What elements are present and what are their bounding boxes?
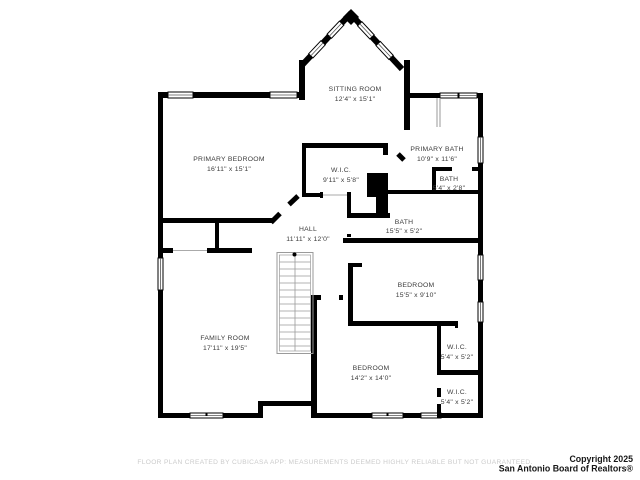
window: [270, 92, 297, 98]
room-dims-wic-lower: 5'4" x 5'2": [441, 399, 474, 406]
window: [376, 41, 393, 59]
room-labels: SITTING ROOM 12'4" x 15'1" PRIMARY BEDRO…: [193, 86, 473, 406]
shower-glass-partition: [437, 98, 440, 127]
bay-wall-right: [347, 10, 405, 71]
window: [478, 137, 483, 163]
copyright-line1: Copyright 2025: [569, 454, 633, 464]
room-dims-primary-bedroom: 16'11" x 15'1": [207, 166, 251, 173]
window: [358, 22, 375, 39]
room-dims-primary-bath: 10'9" x 11'6": [417, 156, 457, 163]
room-label-sitting-room: SITTING ROOM: [329, 86, 382, 93]
footer: FLOOR PLAN CREATED BY CUBICASA APP: MEAS…: [137, 454, 633, 474]
stair-start-marker: [293, 253, 297, 257]
room-dims-wic-upper: 5'4" x 5'2": [441, 354, 474, 361]
room-dims-bedroom-east: 15'5" x 9'10": [396, 292, 437, 299]
room-label-wic-lower: W.I.C.: [447, 389, 467, 396]
room-label-wic-upper: W.I.C.: [447, 344, 467, 351]
exterior-walls: [158, 9, 483, 418]
copyright-line2: San Antonio Board of Realtors®: [499, 464, 634, 474]
chimney-block: [367, 173, 388, 217]
bay-wall-left: [299, 11, 353, 68]
room-label-bath: BATH: [395, 219, 414, 226]
windows: [158, 92, 483, 418]
room-dims-bedroom-south: 14'2" x 14'0": [351, 375, 392, 382]
room-label-bedroom-east: BEDROOM: [398, 282, 435, 289]
floor-plan-page: SITTING ROOM 12'4" x 15'1" PRIMARY BEDRO…: [0, 0, 640, 480]
room-label-hall: HALL: [299, 226, 317, 233]
window: [168, 92, 193, 98]
room-label-bedroom-south: BEDROOM: [353, 365, 390, 372]
floor-plan-svg: SITTING ROOM 12'4" x 15'1" PRIMARY BEDRO…: [0, 0, 640, 480]
room-label-family-room: FAMILY ROOM: [200, 335, 249, 342]
room-dims-family-room: 17'11" x 19'5": [203, 345, 247, 352]
window: [478, 302, 483, 322]
room-dims-wic-hall: 9'11" x 5'8": [323, 177, 359, 184]
room-dims-bath-small: 5'4" x 2'8": [433, 185, 466, 192]
window: [478, 255, 483, 280]
staircase: [277, 253, 313, 354]
room-dims-sitting-room: 12'4" x 15'1": [335, 96, 376, 103]
window: [158, 258, 163, 290]
room-label-bath-small: BATH: [440, 176, 459, 183]
room-label-wic-hall: W.I.C.: [331, 167, 351, 174]
window: [309, 41, 326, 58]
disclaimer-text: FLOOR PLAN CREATED BY CUBICASA APP: MEAS…: [137, 459, 532, 466]
room-dims-hall: 11'11" x 12'0": [286, 236, 330, 243]
window: [440, 93, 477, 98]
room-label-primary-bath: PRIMARY BATH: [410, 146, 463, 153]
window: [372, 413, 403, 418]
window: [190, 413, 223, 418]
window: [327, 21, 344, 38]
room-dims-bath: 15'5" x 5'2": [386, 228, 423, 235]
room-label-primary-bedroom: PRIMARY BEDROOM: [193, 156, 265, 163]
